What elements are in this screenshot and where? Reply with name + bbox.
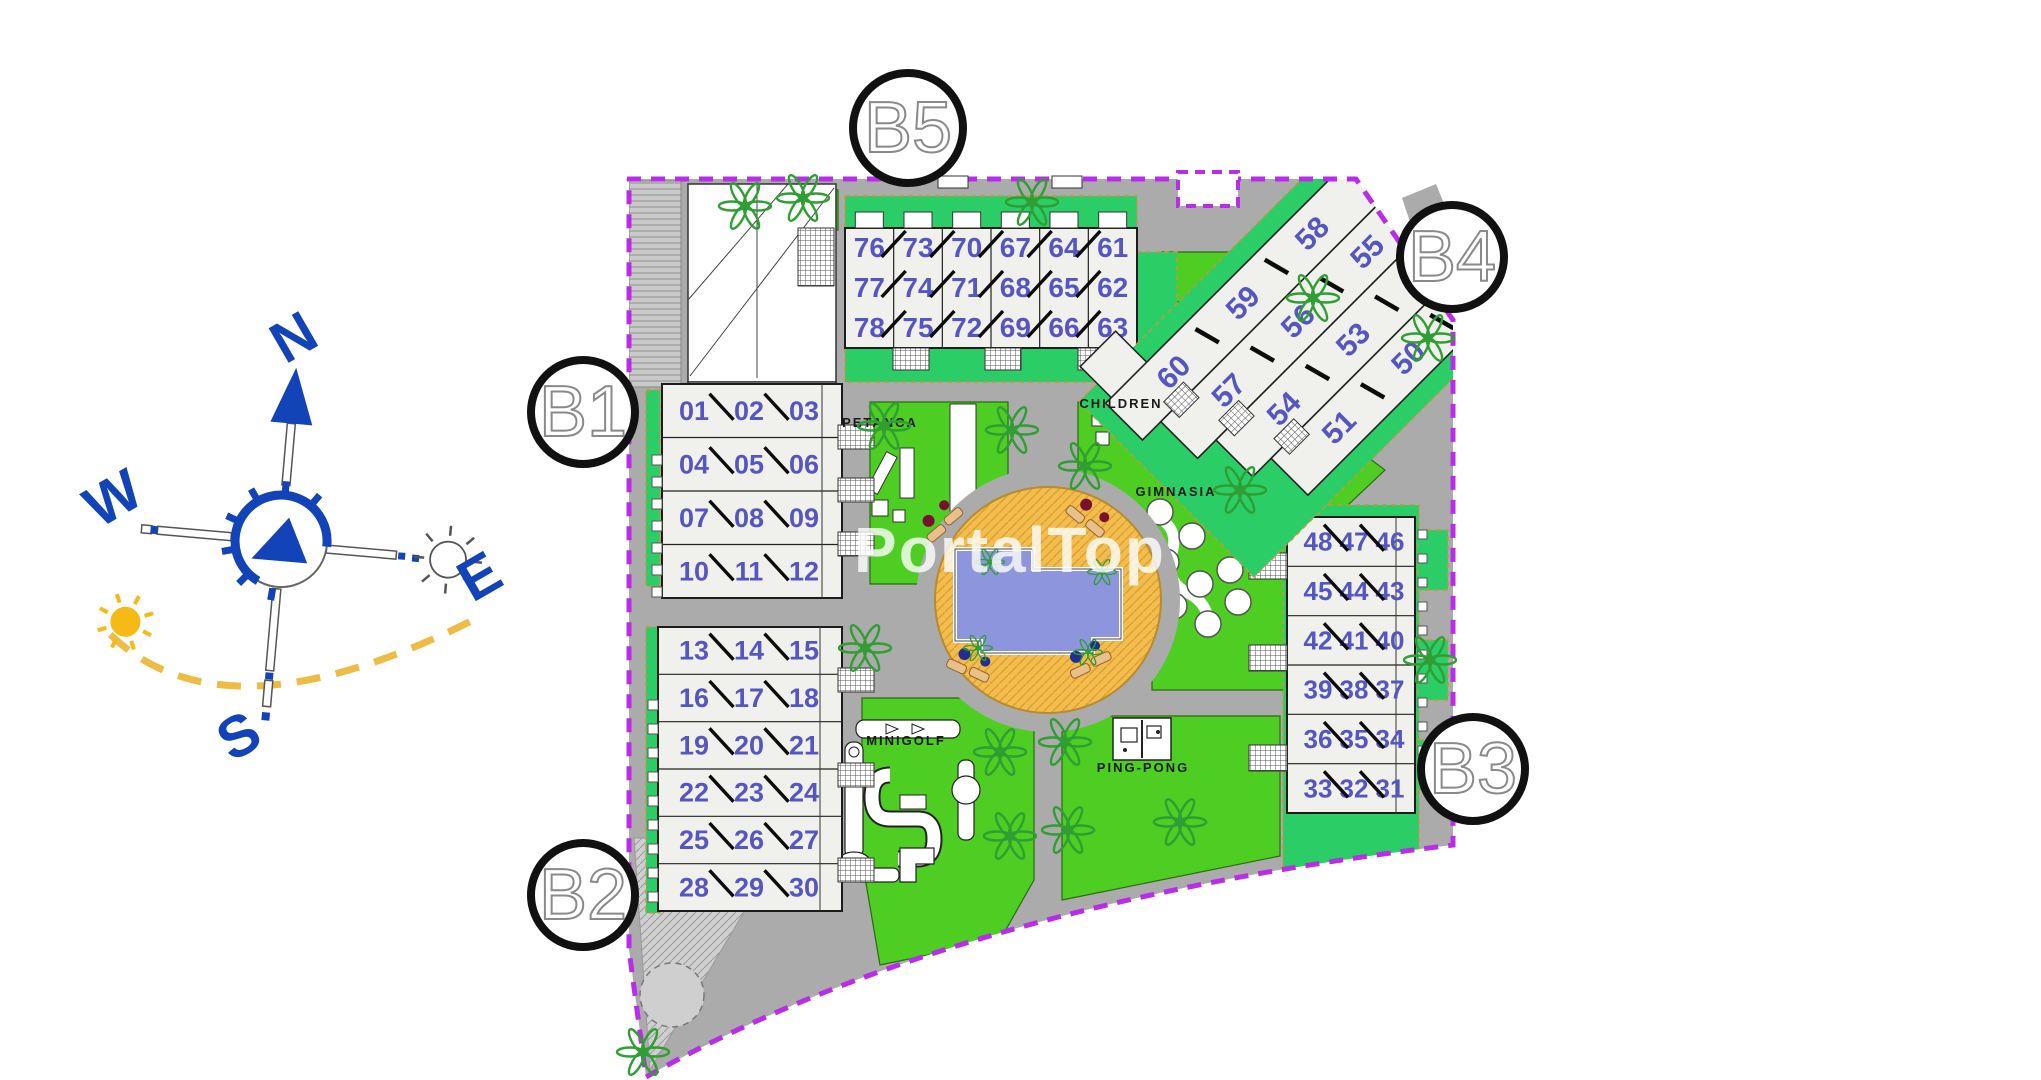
unit-number: 01 <box>679 396 709 426</box>
sun-ray <box>414 557 424 558</box>
amenity-label-children: CHILDREN <box>1079 396 1162 411</box>
unit-number: 08 <box>734 503 764 533</box>
balcony-square <box>648 844 658 854</box>
compass-label-n: N <box>259 299 328 376</box>
unit-number: 27 <box>789 825 819 855</box>
unit-number: 25 <box>679 825 709 855</box>
amenity-label-minigolf: MINIGOLF <box>866 733 946 748</box>
balcony-square <box>652 587 662 597</box>
block-marker-b4: B4 <box>1400 205 1504 309</box>
stair-block <box>893 348 929 370</box>
unit-number: 04 <box>679 449 709 479</box>
shaft-dash <box>288 411 296 419</box>
tree-trunk <box>1007 833 1014 840</box>
unit-number: 11 <box>735 556 764 586</box>
unit-number: 40 <box>1376 625 1405 655</box>
tree-trunk <box>1237 487 1244 494</box>
pingpong-dot <box>1156 730 1160 734</box>
petanca-court <box>900 448 914 498</box>
block-marker-b5: B5 <box>853 73 963 183</box>
tree-trunk <box>1062 739 1069 746</box>
balcony-square <box>1418 554 1427 563</box>
stair-block <box>838 858 874 882</box>
pingpong-table <box>1113 718 1171 760</box>
tree-trunk <box>976 646 980 650</box>
unit-number: 16 <box>679 683 709 713</box>
block-letter: B1 <box>539 372 627 452</box>
pool-area <box>915 468 1180 732</box>
minigolf-detail <box>900 795 926 809</box>
balcony-square <box>648 700 658 710</box>
unit-number: 21 <box>789 730 819 760</box>
balcony-square <box>652 565 662 575</box>
tree-trunk <box>1086 650 1090 654</box>
stair-block <box>1249 645 1287 671</box>
unit-number: 05 <box>734 449 764 479</box>
unit-number: 10 <box>679 556 709 586</box>
balcony-square <box>652 499 662 509</box>
block-letter: B2 <box>539 855 627 935</box>
unit-number: 68 <box>1000 272 1031 303</box>
unit-number: 28 <box>679 872 709 902</box>
sun-ray <box>131 641 135 650</box>
tree-trunk <box>1009 427 1016 434</box>
b3-garden-e2 <box>1418 640 1448 700</box>
unit-number: 19 <box>679 730 709 760</box>
unit-number: 34 <box>1376 724 1405 754</box>
tree-trunk <box>1425 335 1432 342</box>
sun-ray <box>422 574 430 582</box>
balcony-square <box>648 772 658 782</box>
compass-tick <box>250 489 258 499</box>
tree-trunk <box>1029 199 1036 206</box>
unit-number: 76 <box>854 232 885 263</box>
balcony-square <box>648 748 658 758</box>
entry-porch <box>855 212 883 228</box>
entry-porch <box>1050 212 1078 228</box>
unit-number: 20 <box>734 730 764 760</box>
unit-number: 17 <box>734 683 764 713</box>
unit-number: 74 <box>902 272 934 303</box>
shaft-dash <box>261 712 270 721</box>
north-shaft <box>282 423 295 485</box>
gym-circle <box>1187 571 1213 597</box>
sun-disc <box>109 606 142 639</box>
unit-number: 24 <box>789 778 819 808</box>
b5-garden-north <box>845 196 1137 230</box>
balcony-square <box>1418 602 1427 611</box>
unit-number: 37 <box>1376 675 1405 705</box>
block-marker-b3: B3 <box>1421 717 1525 821</box>
compass-rose: NWES <box>49 281 537 797</box>
minigolf-piece <box>845 742 863 858</box>
tree-trunk <box>1082 463 1089 470</box>
b1-garden-west <box>646 390 660 586</box>
balcony-square <box>648 820 658 830</box>
watermark: PortalTop <box>854 514 1166 586</box>
tree-trunk <box>1177 819 1184 826</box>
balcony-square <box>1418 698 1427 707</box>
unit-number: 46 <box>1376 527 1405 557</box>
building-b2: 131415161718192021222324252627282930 <box>648 627 874 911</box>
amenity-label-ping-pong: PING-PONG <box>1097 760 1189 775</box>
tree-trunk <box>800 195 807 202</box>
compass-tick <box>285 481 286 493</box>
unit-number: 77 <box>854 272 885 303</box>
entry-porch <box>904 212 932 228</box>
unit-number: 03 <box>789 396 819 426</box>
unit-number: 66 <box>1048 312 1079 343</box>
site-plan-svg: 7673706764617774716865627875726966630102… <box>0 0 2041 1080</box>
sun-ray <box>99 608 108 612</box>
gym-circle <box>1179 523 1205 549</box>
entry-porch <box>1099 212 1127 228</box>
stair-block <box>838 763 874 787</box>
unit-number: 65 <box>1048 272 1079 303</box>
block-marker-b2: B2 <box>531 843 635 947</box>
unit-number: 06 <box>789 449 819 479</box>
building-b5: 767370676461777471686562787572696663 <box>845 212 1137 370</box>
balcony-square <box>1418 722 1427 731</box>
sun-ray <box>98 627 107 631</box>
sun-path-arc <box>107 591 470 706</box>
sun-ray <box>116 594 120 603</box>
sun-ray <box>143 631 152 635</box>
unit-number: 07 <box>679 503 709 533</box>
unit-number: 69 <box>1000 312 1031 343</box>
tree-trunk <box>1065 827 1072 834</box>
balcony-square <box>648 892 658 902</box>
tree-trunk <box>1310 295 1317 302</box>
compass-label-s: S <box>206 698 272 774</box>
sun-ray <box>450 526 451 536</box>
compass-tick <box>226 516 238 521</box>
unit-number: 22 <box>679 778 709 808</box>
unit-number: 71 <box>951 272 982 303</box>
unit-number: 18 <box>789 683 819 713</box>
south-shaft2 <box>263 680 273 707</box>
unit-number: 15 <box>789 636 819 666</box>
parking-hatch-strip <box>629 181 681 387</box>
tree-trunk <box>997 749 1004 756</box>
site-plan-page: { "watermark": "PortalTop", "colors": { … <box>0 0 2041 1080</box>
sun-filled-icon <box>96 593 154 651</box>
sun-ray <box>445 584 446 594</box>
unit-number: 31 <box>1376 773 1405 803</box>
unit-number: 43 <box>1376 576 1405 606</box>
unit-number: 09 <box>789 503 819 533</box>
unit-number: 30 <box>789 872 819 902</box>
tree-trunk <box>1427 657 1434 664</box>
balcony-square <box>652 455 662 465</box>
stair-block <box>838 478 874 502</box>
block-letter: B5 <box>864 88 952 168</box>
unit-number: 12 <box>789 556 819 586</box>
balcony-square <box>1418 578 1427 587</box>
pingpong-half <box>1121 728 1137 742</box>
tree-trunk <box>881 423 888 430</box>
west-shaft <box>157 526 231 540</box>
block-letter: B4 <box>1408 217 1496 297</box>
stair-block <box>985 348 1021 370</box>
block-letter: B3 <box>1429 729 1517 809</box>
building-b1: 010203040506070809101112 <box>652 384 874 598</box>
compass-tick <box>222 548 234 552</box>
balcony-square <box>652 477 662 487</box>
gym-circle <box>1225 589 1251 615</box>
unit-number: 78 <box>854 312 885 343</box>
compass-tick <box>239 574 247 584</box>
unit-number: 61 <box>1097 232 1128 263</box>
unit-number: 62 <box>1097 272 1128 303</box>
unit-number: 73 <box>902 232 933 263</box>
compass-tick <box>271 588 273 600</box>
balcony-square <box>648 724 658 734</box>
building-b3: 484746454443424140393837363534333231 <box>1249 517 1427 813</box>
tree-trunk <box>742 203 749 210</box>
unit-number: 14 <box>734 636 764 666</box>
boundary-gate-notch <box>1178 172 1238 206</box>
balcony-square <box>652 543 662 553</box>
stair-block <box>1249 745 1287 771</box>
curb-stub <box>1052 176 1082 188</box>
east-shaft <box>326 545 396 559</box>
unit-number: 75 <box>902 312 933 343</box>
balcony-square <box>1418 626 1427 635</box>
entrance-stairs <box>798 228 834 286</box>
unit-number: 23 <box>734 778 764 808</box>
unit-number: 13 <box>679 636 709 666</box>
stair-block <box>838 668 874 692</box>
gym-circle <box>1195 611 1221 637</box>
sun-ray <box>135 596 139 605</box>
balcony-square <box>652 521 662 531</box>
balcony-square <box>648 868 658 878</box>
unit-number: 70 <box>951 232 982 263</box>
unit-number: 67 <box>1000 232 1031 263</box>
minigolf-piece <box>952 776 980 804</box>
west-shaft2 <box>141 525 152 534</box>
compass-tick <box>312 494 320 504</box>
shaft-dash <box>398 552 406 560</box>
entry-porch <box>953 212 981 228</box>
balcony-square <box>648 796 658 806</box>
unit-number: 72 <box>951 312 982 343</box>
block-marker-b1: B1 <box>531 360 635 464</box>
sun-ray <box>426 534 434 542</box>
unit-number: 64 <box>1048 232 1080 263</box>
unit-number: 02 <box>734 396 764 426</box>
unit-number: 29 <box>734 872 764 902</box>
tree-trunk <box>862 645 869 652</box>
dashed-circle-marking <box>640 963 704 1027</box>
pingpong-dot <box>1123 748 1127 752</box>
balcony-square <box>1418 530 1427 539</box>
sun-ray <box>145 613 154 617</box>
shaft-dash <box>150 526 158 535</box>
south-shaft <box>266 589 281 671</box>
shaft-dash <box>265 672 274 680</box>
tree-trunk <box>640 1049 647 1056</box>
curb-stub <box>938 176 968 188</box>
unit-number: 26 <box>734 825 764 855</box>
amenity-label-gimnasia: GIMNASIA <box>1136 484 1217 499</box>
